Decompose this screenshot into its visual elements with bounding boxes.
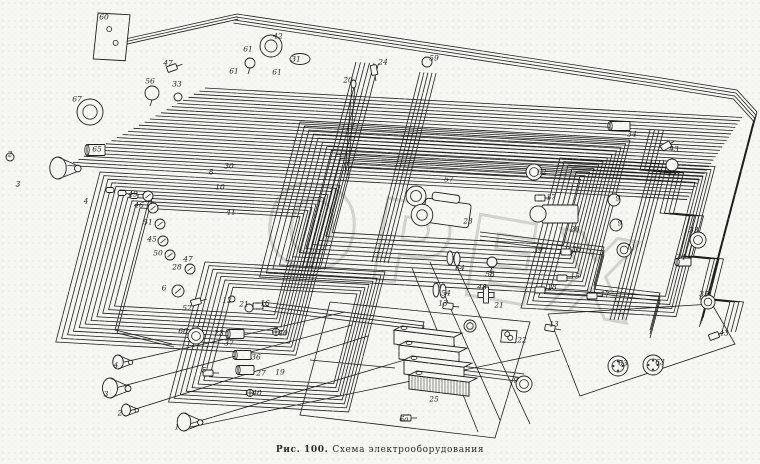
callout-35: 35 xyxy=(699,290,709,299)
sender xyxy=(188,328,204,344)
callout-3: 3 xyxy=(16,180,21,189)
figure-title: Схема электрооборудования xyxy=(332,445,484,455)
callout-30: 30 xyxy=(224,162,234,171)
figure-number: Рис. 100. xyxy=(276,445,329,455)
wire-band xyxy=(101,147,701,180)
callout-52: 52 xyxy=(182,304,192,313)
callout-66: 66 xyxy=(178,327,188,336)
callout-51: 51 xyxy=(143,218,153,227)
wire-band xyxy=(167,110,727,141)
callout-31: 31 xyxy=(291,55,301,64)
callout-64: 64 xyxy=(455,264,465,273)
callout-63: 63 xyxy=(618,359,628,368)
callout-42: 42 xyxy=(272,32,283,41)
callout-46: 46 xyxy=(133,201,144,210)
callout-43: 43 xyxy=(718,329,729,338)
headlamp xyxy=(75,165,82,172)
figure-caption: Рис. 100.Схема электрооборудования xyxy=(0,445,760,455)
fuse xyxy=(106,188,114,193)
callout-36: 36 xyxy=(251,353,261,362)
headlamp xyxy=(198,420,203,425)
headlamp xyxy=(125,386,131,392)
wire-run xyxy=(186,350,560,428)
fuse xyxy=(557,275,567,281)
callout-41: 41 xyxy=(225,208,236,217)
callout-10: 10 xyxy=(215,183,225,192)
relay xyxy=(464,320,476,332)
callout-67: 67 xyxy=(72,95,82,104)
tail-lamp xyxy=(613,365,615,367)
callout-60: 60 xyxy=(99,13,109,22)
callout-40: 40 xyxy=(251,389,262,398)
fuse xyxy=(535,287,545,293)
callout-21: 21 xyxy=(493,301,504,310)
callout-5: 5 xyxy=(202,366,207,375)
callout-18: 18 xyxy=(547,283,557,292)
callout-34: 34 xyxy=(676,253,686,262)
callout-57: 57 xyxy=(444,175,454,184)
callout-43: 43 xyxy=(668,145,679,154)
fuse xyxy=(453,306,459,307)
button xyxy=(248,68,250,74)
callout-13: 13 xyxy=(549,320,559,329)
callout-62: 62 xyxy=(537,168,547,177)
callout-16: 16 xyxy=(260,299,270,308)
callout-49: 49 xyxy=(127,190,138,199)
callout-56: 56 xyxy=(145,77,155,86)
switch xyxy=(190,298,201,306)
callout-50: 50 xyxy=(153,249,163,258)
callout-13: 13 xyxy=(438,299,448,308)
fuse xyxy=(587,293,597,299)
button xyxy=(245,58,255,68)
starter-motor xyxy=(411,204,433,226)
wire-band xyxy=(178,104,732,134)
fuse xyxy=(118,191,126,196)
wire-run xyxy=(113,19,238,47)
connector xyxy=(174,93,182,101)
callout-11: 11 xyxy=(626,243,636,252)
callout-25: 25 xyxy=(428,395,439,404)
callout-33: 33 xyxy=(689,226,699,235)
connector xyxy=(447,251,453,265)
callout-40: 40 xyxy=(277,329,288,338)
callout-2: 2 xyxy=(117,409,123,418)
scanned-page: ОРЕХ604733566765616161423120245934432343… xyxy=(0,0,760,464)
callout-26: 26 xyxy=(569,225,580,234)
fuse xyxy=(535,195,545,201)
callout-61: 61 xyxy=(272,68,282,77)
callout-17: 17 xyxy=(600,290,610,299)
callout-37: 37 xyxy=(224,339,234,348)
callout-28: 28 xyxy=(171,263,182,272)
callout-3: 3 xyxy=(104,390,109,399)
callout-54: 54 xyxy=(441,289,451,298)
callout-21: 21 xyxy=(238,300,249,309)
wire-run xyxy=(112,14,237,42)
connector xyxy=(433,283,439,297)
callout-58: 58 xyxy=(485,270,495,279)
tail-lamp xyxy=(652,360,654,362)
switch-knob xyxy=(150,100,152,106)
callout-18: 18 xyxy=(572,245,582,254)
lamp xyxy=(516,376,532,392)
tail-lamp xyxy=(648,364,650,366)
callout-17: 17 xyxy=(546,193,556,202)
callout-33: 33 xyxy=(667,169,677,178)
callout-9: 9 xyxy=(514,376,519,385)
callout-6: 6 xyxy=(162,284,167,293)
callout-15: 15 xyxy=(570,272,580,281)
callout-65: 65 xyxy=(92,145,102,154)
callout-12: 12 xyxy=(222,296,232,305)
wiring-diagram: ОРЕХ604733566765616161423120245934432343… xyxy=(0,0,760,464)
sensor xyxy=(487,257,497,267)
callout-45: 45 xyxy=(146,235,157,244)
bracket xyxy=(370,65,378,76)
callout-22: 22 xyxy=(516,336,527,345)
wire-run xyxy=(113,17,238,45)
distributor xyxy=(406,186,426,206)
callout-9: 9 xyxy=(618,219,623,228)
callout-47: 47 xyxy=(162,59,173,68)
bracket xyxy=(375,75,376,81)
headlamp xyxy=(50,157,67,179)
switch xyxy=(201,299,207,301)
callout-2: 2 xyxy=(7,150,13,159)
callout-4: 4 xyxy=(113,361,119,370)
callout-63: 63 xyxy=(655,358,665,367)
tail-lamp xyxy=(652,369,654,371)
callout-33: 33 xyxy=(172,80,182,89)
callout-19: 19 xyxy=(275,368,285,377)
callout-47: 47 xyxy=(182,255,193,264)
switch-knob xyxy=(145,86,159,100)
callout-34: 34 xyxy=(627,130,637,139)
wire-band xyxy=(161,113,724,144)
fuse xyxy=(561,249,571,255)
callout-23: 23 xyxy=(462,217,473,226)
callout-48: 48 xyxy=(476,283,487,292)
callout-20: 20 xyxy=(342,76,353,85)
lamp xyxy=(135,409,139,413)
callout-8: 8 xyxy=(209,168,214,177)
tail-lamp xyxy=(617,370,619,372)
callout-61: 61 xyxy=(243,45,253,54)
callout-1: 1 xyxy=(175,423,180,432)
lamp xyxy=(129,360,133,364)
wiper-motor xyxy=(530,206,546,222)
callout-23: 23 xyxy=(213,329,224,338)
callout-6а: 6а xyxy=(399,415,408,424)
callout-61: 61 xyxy=(229,67,239,76)
connector xyxy=(177,64,183,66)
wiper-motor xyxy=(542,205,578,223)
callout-24: 24 xyxy=(377,58,388,67)
callout-39: 39 xyxy=(533,246,543,255)
callout-9: 9 xyxy=(616,194,621,203)
wire-band xyxy=(106,144,702,177)
wire-band xyxy=(156,116,723,147)
wire-band xyxy=(172,107,729,138)
lamp xyxy=(708,331,719,340)
callout-4: 4 xyxy=(83,197,89,206)
callout-59: 59 xyxy=(429,54,439,63)
callout-27: 27 xyxy=(255,369,266,378)
